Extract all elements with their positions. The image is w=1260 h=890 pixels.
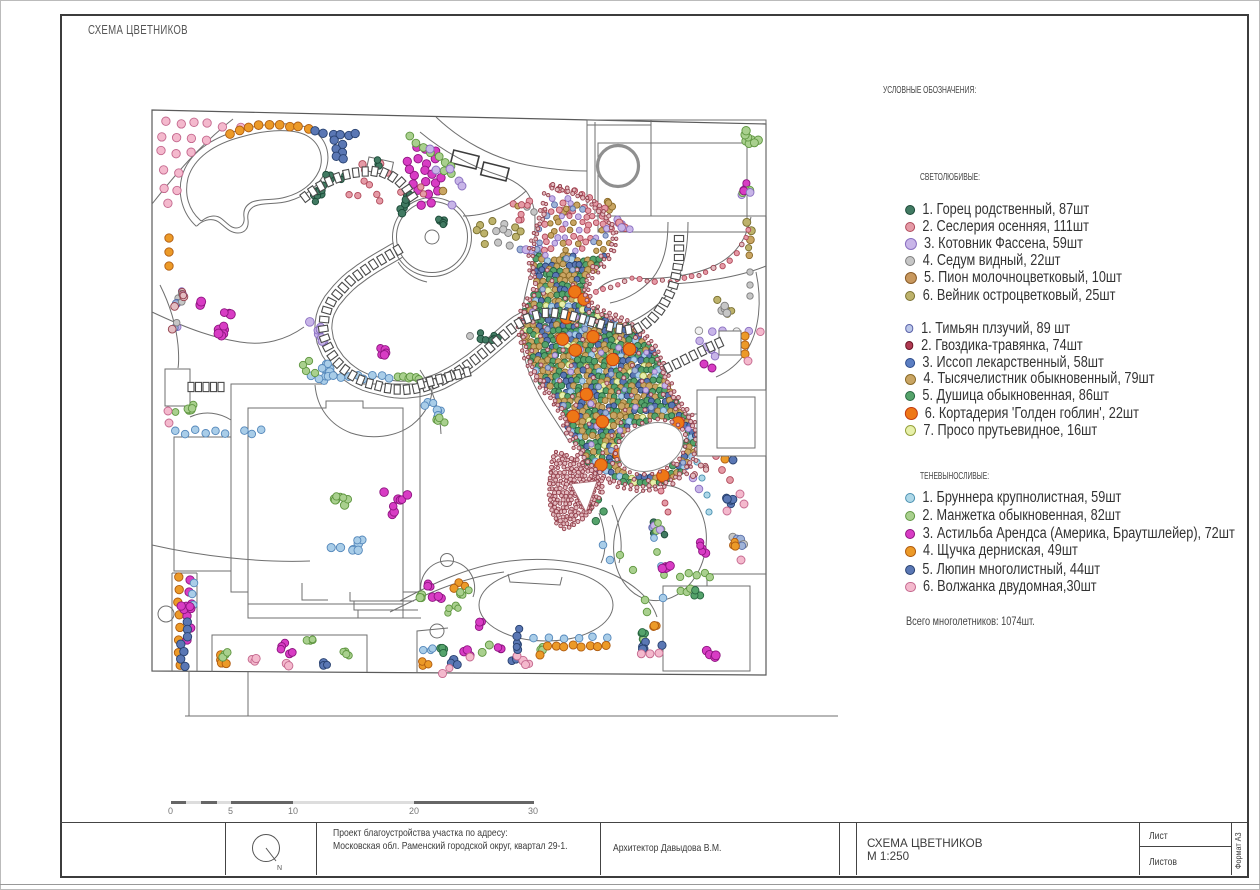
svg-text:N: N [277, 865, 282, 872]
